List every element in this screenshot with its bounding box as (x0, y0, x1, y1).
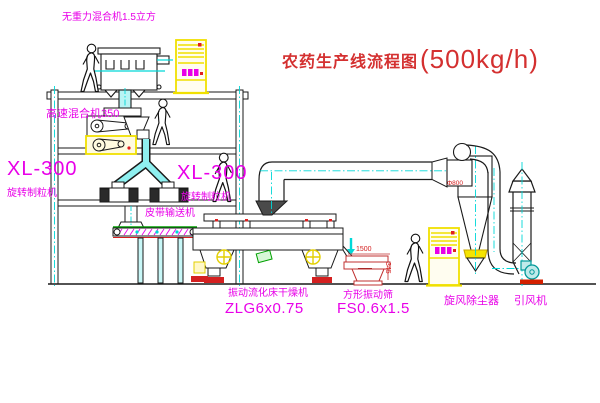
person-figure (153, 99, 170, 144)
conveyor-leg (158, 238, 163, 283)
roof-slab (47, 92, 248, 99)
label-high-speed-mixer: 高速混合机350 (46, 109, 119, 120)
label-granulator-left-model: XL-300 (7, 159, 78, 179)
dryer-body (193, 228, 343, 250)
indicator-dot-icon (127, 146, 130, 149)
diagram-title: 农药生产线流程图 (500kg/h) (282, 44, 539, 75)
pesticide-production-line-diagram: 农药生产线流程图 (500kg/h) 无重力混合机1.5立方 高速混合机350 … (0, 0, 600, 403)
dryer-tag (256, 250, 272, 262)
control-cabinet-right (426, 228, 462, 286)
dryer-exhaust-duct (256, 158, 449, 215)
title-capacity: (500kg/h) (420, 44, 539, 75)
indicator-light-icon (451, 231, 455, 235)
cabinet-display-text (182, 69, 199, 76)
cabinet-display-text (435, 247, 452, 254)
granulator-left (100, 182, 138, 202)
granulator-discharge-chute (118, 206, 144, 228)
label-granulator-right-name: 旋转制粒机 (181, 193, 231, 203)
conveyor-leg (138, 238, 143, 283)
cyclone-cone (458, 197, 492, 250)
vortex-outlet (454, 144, 471, 161)
label-dryer-name: 振动流化床干燥机 (228, 289, 308, 299)
label-dryer-model: ZLG6x0.75 (225, 301, 304, 316)
person-figure (405, 234, 423, 281)
fan-base (520, 280, 543, 285)
indicator-light-icon (200, 72, 203, 75)
control-cabinet-top (173, 40, 209, 93)
label-fan: 引风机 (514, 296, 547, 307)
duct-transition-cone (432, 158, 447, 187)
indicator-light-icon (453, 249, 456, 252)
dim-cyclone-inlet: Φ800 (447, 181, 463, 188)
dryer-inlet-flange (194, 262, 205, 273)
person-figure (81, 44, 99, 91)
label-gravity-mixer: 无重力混合机1.5立方 (62, 13, 156, 23)
induced-draft-fan (520, 261, 543, 284)
label-belt-conveyor: 皮带输送机 (145, 209, 195, 219)
title-text: 农药生产线流程图 (282, 48, 418, 75)
dim-screen-length: 1500 (356, 246, 372, 253)
indicator-light-icon (198, 43, 202, 47)
dim-screen-side: 345 (384, 262, 391, 274)
fluid-bed-dryer (191, 214, 352, 283)
label-granulator-left-name: 旋转制粒机 (7, 189, 57, 199)
label-screen-model: FS0.6x1.5 (337, 301, 410, 316)
conveyor-leg (178, 238, 183, 283)
label-cyclone: 旋风除尘器 (444, 296, 499, 307)
label-granulator-right-model: XL-300 (177, 163, 248, 183)
